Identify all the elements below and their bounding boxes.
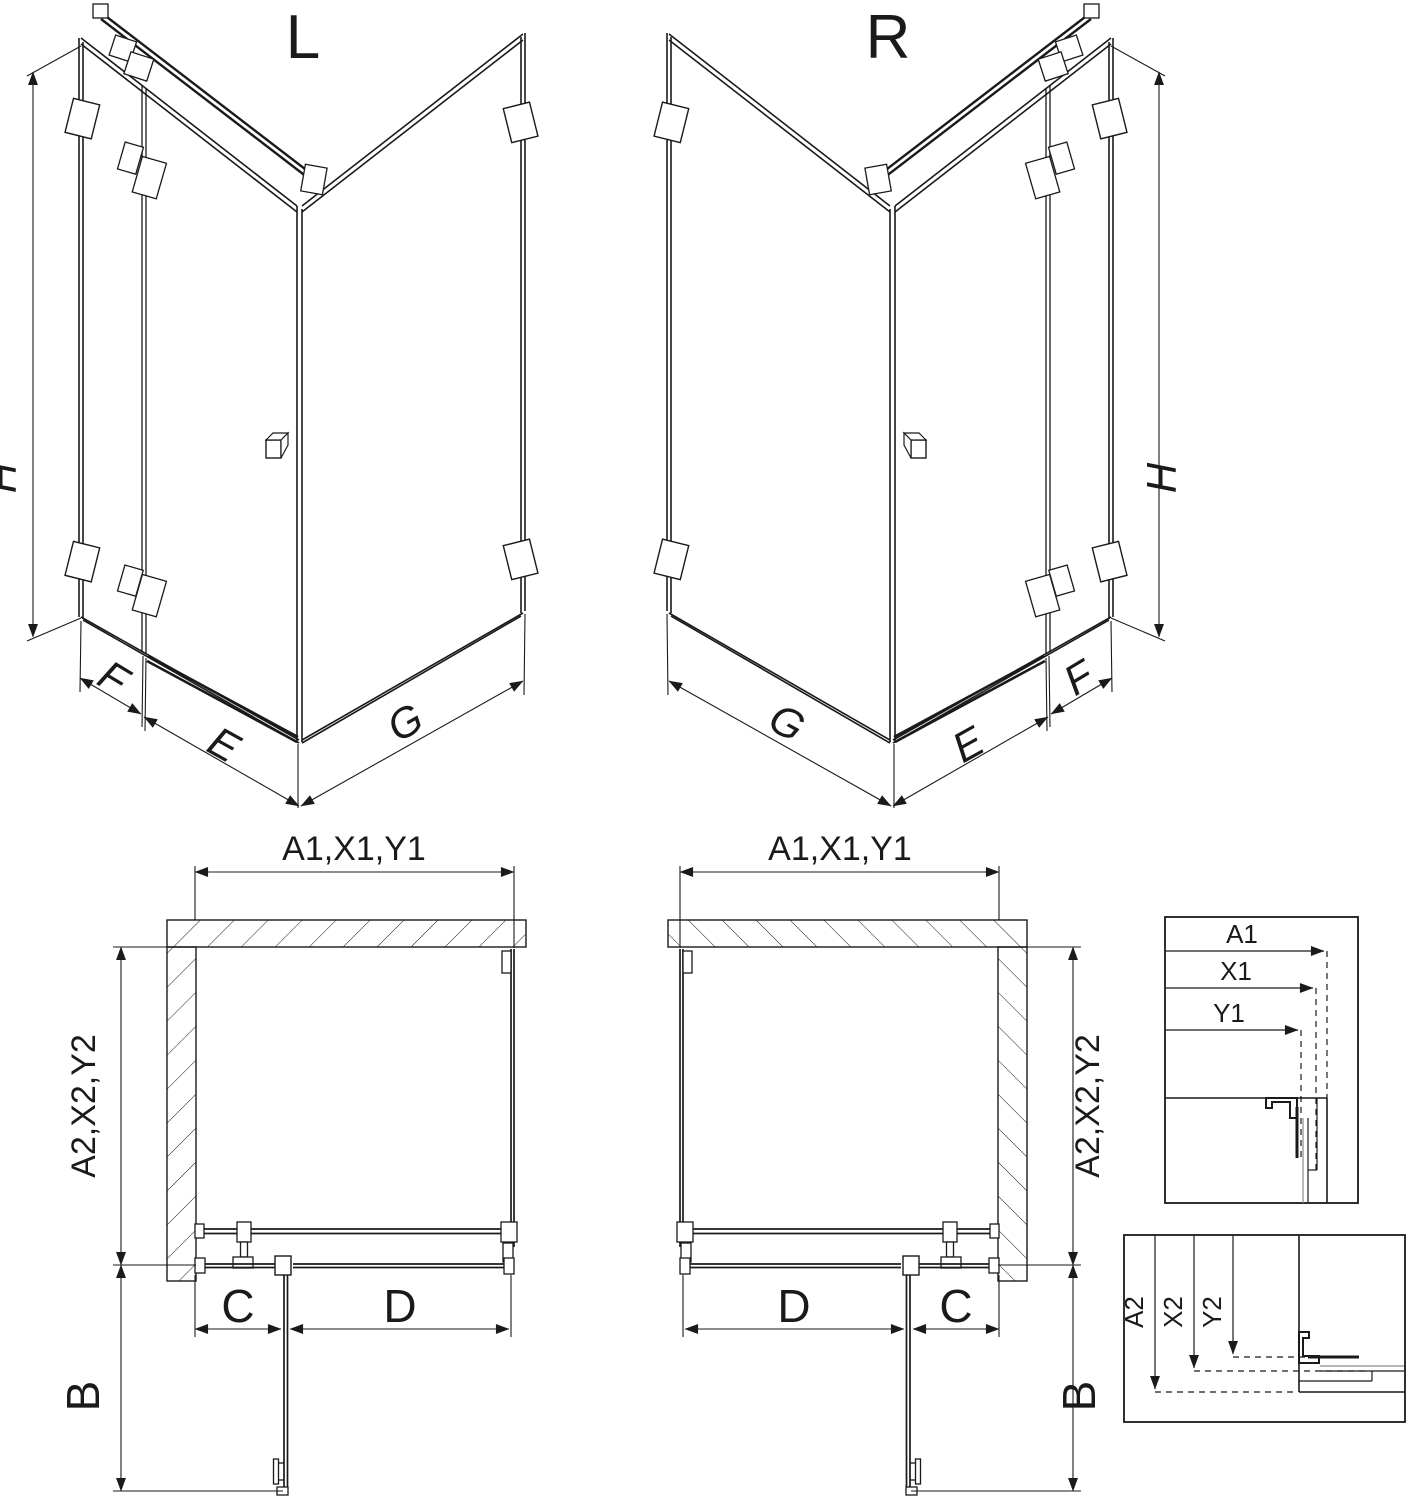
plan-right-c-label: C xyxy=(939,1280,972,1332)
iso-view-right: R H F E G xyxy=(654,3,1185,808)
detail-depth-box: A2 X2 Y2 xyxy=(1119,1235,1405,1422)
plan-left-width-label: A1,X1,Y1 xyxy=(282,830,426,868)
plan-right-depth-label: A2,X2,Y2 xyxy=(1069,1034,1107,1178)
iso-left-return-label: G xyxy=(379,694,430,751)
drawing-sheet: L H F E G R H F E G A1,X1,Y1 A2,X2,Y2 C … xyxy=(0,0,1416,1499)
plan-view-left: A1,X1,Y1 A2,X2,Y2 C D B xyxy=(57,830,426,1411)
detail-a2-label: A2 xyxy=(1119,1296,1149,1328)
iso-left-height-label: H xyxy=(0,462,25,493)
iso-right-door-label: E xyxy=(944,716,992,771)
plan-left-b-label: B xyxy=(57,1381,109,1412)
plan-left-c-label: C xyxy=(221,1280,254,1332)
iso-left-panel-label: F xyxy=(90,651,138,706)
detail-x1-label: X1 xyxy=(1220,956,1252,986)
iso-right-title: R xyxy=(866,3,911,72)
plan-geometry xyxy=(113,866,526,1495)
plan-left-d-label: D xyxy=(383,1280,416,1332)
technical-drawing: L H F E G R H F E G A1,X1,Y1 A2,X2,Y2 C … xyxy=(0,0,1416,1499)
iso-left-door-label: E xyxy=(200,717,248,772)
iso-right-panel-label: F xyxy=(1055,650,1103,705)
plan-right-b-label: B xyxy=(1053,1381,1105,1412)
iso-view-left: L H F E G xyxy=(0,3,431,772)
iso-left-title: L xyxy=(286,3,320,72)
iso-right-height-label: H xyxy=(1138,462,1185,493)
plan-left-depth-label: A2,X2,Y2 xyxy=(65,1034,103,1178)
detail-width-box: A1 X1 Y1 xyxy=(1165,917,1358,1203)
detail-a1-label: A1 xyxy=(1226,919,1258,949)
plan-right-d-label: D xyxy=(777,1280,810,1332)
iso-right-return-label: G xyxy=(761,694,812,751)
plan-right-width-label: A1,X1,Y1 xyxy=(768,830,912,868)
plan-view-right: A1,X1,Y1 A2,X2,Y2 D C B xyxy=(668,830,1107,1495)
detail-y1-label: Y1 xyxy=(1213,998,1245,1028)
detail-x2-label: X2 xyxy=(1158,1296,1188,1328)
detail-y2-label: Y2 xyxy=(1197,1296,1227,1328)
